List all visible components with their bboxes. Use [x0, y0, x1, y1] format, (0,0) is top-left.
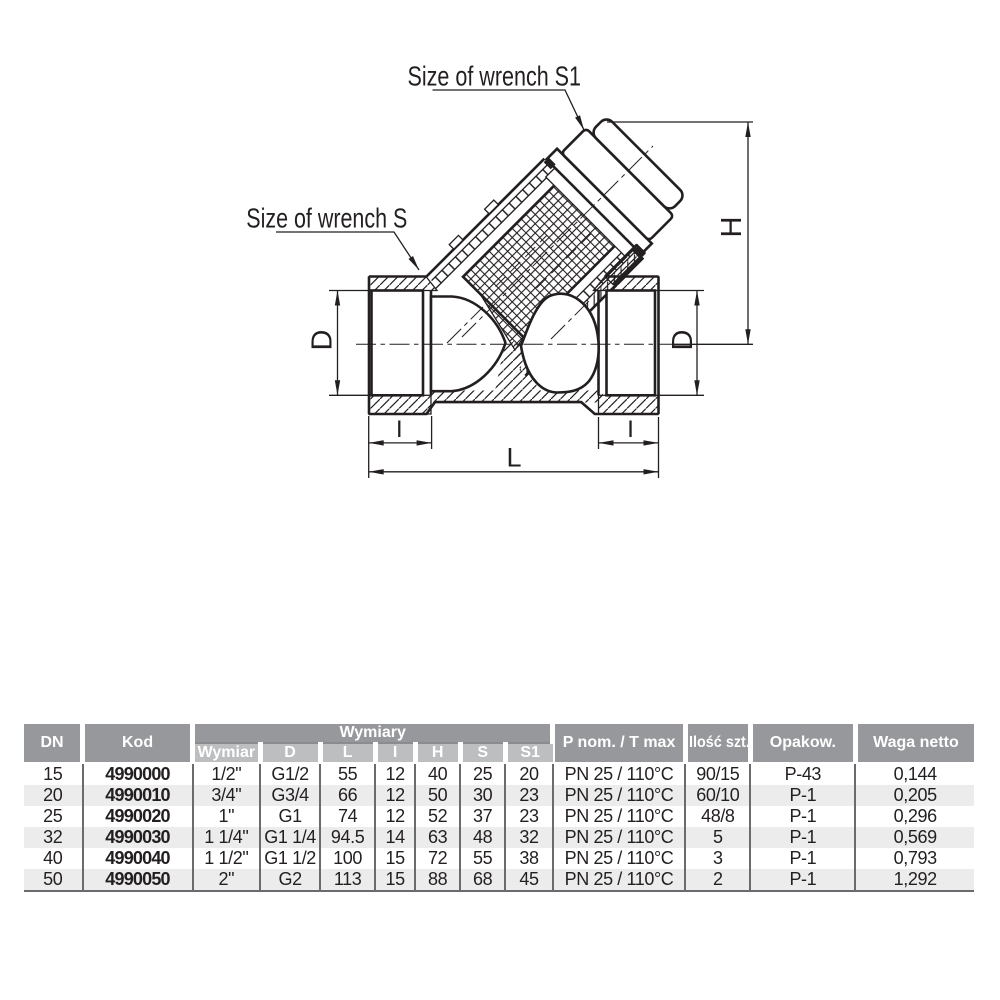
svg-text:I: I: [396, 416, 403, 443]
svg-text:L: L: [506, 443, 521, 473]
svg-text:Size of wrench S: Size of wrench S: [246, 203, 407, 234]
svg-text:D: D: [667, 330, 699, 351]
svg-text:D: D: [307, 330, 339, 351]
svg-text:I: I: [627, 416, 634, 443]
svg-text:H: H: [716, 217, 748, 238]
svg-text:Size of wrench S1: Size of wrench S1: [408, 61, 582, 92]
